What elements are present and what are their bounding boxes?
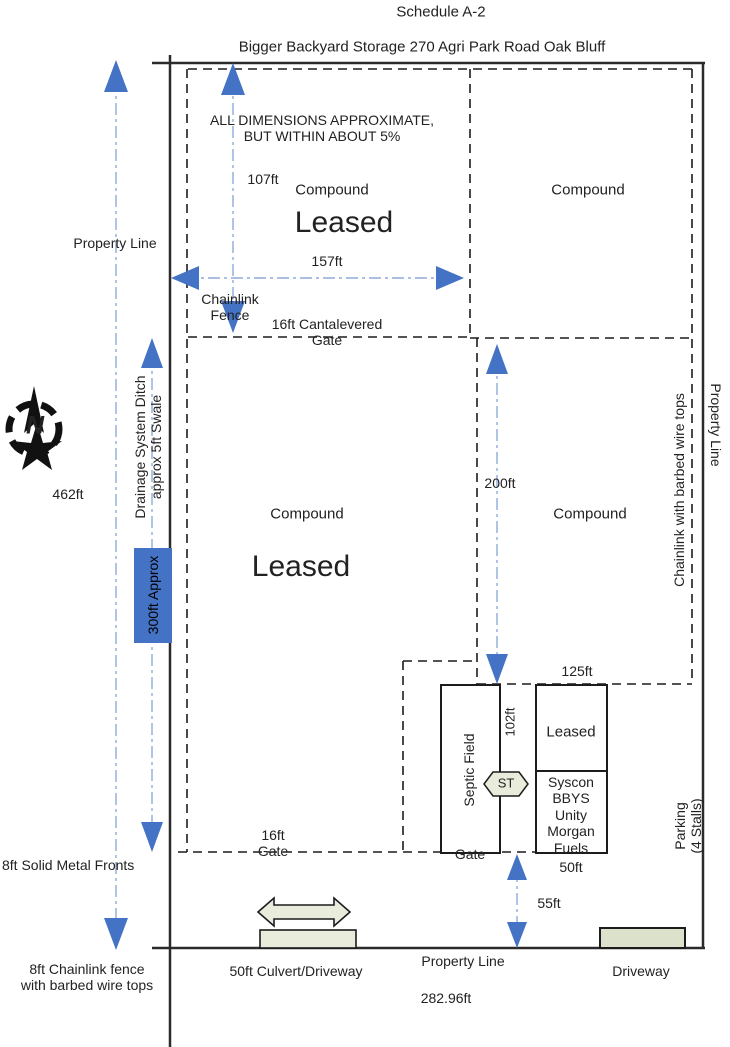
tenant-list: Syscon BBYS Unity Morgan Fuels (547, 774, 594, 856)
property-boundary-lines (152, 55, 705, 1047)
dim-50ft-label: 50ft (559, 859, 582, 875)
arrowhead-157-left (171, 266, 199, 290)
tenant-name: Syscon (547, 774, 594, 790)
plan-drawing (0, 0, 730, 1047)
tr-compound-label: Compound (551, 181, 624, 198)
parking-label: Parking (4 Stalls) (672, 798, 704, 853)
chainlink-barbed-label: 8ft Chainlink fence with barbed wire top… (21, 961, 153, 993)
dimension-disclaimer: ALL DIMENSIONS APPROXIMATE, BUT WITHIN A… (210, 112, 434, 144)
dim-462ft-label: 462ft (52, 486, 83, 502)
double-arrow-shape (258, 898, 350, 926)
drainage-line2: approx 5ft Swale (148, 375, 164, 518)
dim-125ft-label: 125ft (561, 663, 592, 679)
arrowhead-55-up (507, 854, 527, 880)
driveway-rect (600, 928, 685, 948)
dim-102ft-label: 102ft (504, 708, 519, 737)
chainlink-fence-label: Chainlink Fence (201, 291, 259, 323)
driveway-shapes (258, 898, 685, 948)
driveway-label: Driveway (612, 963, 670, 979)
plan-subtitle: Bigger Backyard Storage 270 Agri Park Ro… (239, 38, 606, 55)
septic-field-label: Septic Field (461, 733, 477, 806)
culvert-rect (260, 930, 356, 948)
chainlink-fence-line1: Chainlink (201, 291, 259, 307)
bottom-property-line-label: Property Line (421, 953, 504, 969)
parking-line2: (4 Stalls) (688, 798, 704, 853)
dim-200ft-label: 200ft (484, 475, 515, 491)
page-title: Schedule A-2 (396, 3, 485, 20)
arrowhead-drainage-down (141, 822, 163, 852)
tl-compound-label: Compound (295, 181, 368, 198)
chainlink-barbed-line2: with barbed wire tops (21, 977, 153, 993)
16ft-gate-line2: Gate (258, 843, 288, 859)
dim-107ft-label: 107ft (247, 171, 278, 187)
arrowhead-157-right (436, 266, 464, 290)
left-property-line-label: Property Line (73, 235, 156, 251)
site-plan: Schedule A-2 Bigger Backyard Storage 270… (0, 0, 730, 1047)
septic-gate-label: Gate (455, 846, 485, 862)
tenant-leased-label: Leased (546, 723, 595, 740)
drainage-line1: Drainage System Ditch (132, 375, 148, 518)
cantilevered-gate-label: 16ft Cantalevered Gate (272, 316, 383, 348)
center-compound-label: Compound (270, 505, 343, 522)
16ft-gate-line1: 16ft (258, 827, 288, 843)
arrowhead-107-up (221, 63, 245, 95)
arrowhead-200-up (486, 344, 508, 374)
tenant-name: Morgan (547, 823, 594, 839)
arrowhead-462-down (104, 918, 128, 950)
compass-north-letter: N (26, 412, 44, 441)
septic-tank-label: ST (498, 777, 515, 792)
arrowhead-55-down (507, 922, 527, 948)
tenant-name: Unity (547, 807, 594, 823)
tenant-name: BBYS (547, 790, 594, 806)
solid-metal-fronts-label: 8ft Solid Metal Fronts (2, 857, 134, 873)
drainage-ditch-label: Drainage System Ditch approx 5ft Swale (132, 375, 164, 518)
dim-300ft-label: 300ft Approx (145, 556, 161, 635)
disclaimer-line1: ALL DIMENSIONS APPROXIMATE, (210, 112, 434, 128)
arrowhead-200-down (486, 654, 508, 684)
chainlink-barbed-line1: 8ft Chainlink fence (21, 961, 153, 977)
tenant-name: Fuels (547, 840, 594, 856)
tl-leased-label: Leased (295, 206, 393, 241)
center-leased-label: Leased (252, 550, 350, 585)
chainlink-fence-line2: Fence (201, 307, 259, 323)
arrowhead-462-up (104, 60, 128, 92)
cantilevered-gate-line2: Gate (272, 332, 383, 348)
culvert-driveway-label: 50ft Culvert/Driveway (229, 963, 362, 979)
frontage-dimension-label: 282.96ft (421, 990, 472, 1006)
cantilevered-gate-line1: 16ft Cantalevered (272, 316, 383, 332)
arrowhead-drainage-up (141, 338, 163, 368)
parking-line1: Parking (672, 798, 688, 853)
right-property-line-label: Property Line (708, 383, 724, 466)
16ft-gate-label: 16ft Gate (258, 827, 288, 859)
dim-157ft-label: 157ft (311, 253, 342, 269)
right-chainlink-label: Chainlink with barbed wire tops (671, 393, 687, 587)
disclaimer-line2: BUT WITHIN ABOUT 5% (210, 128, 434, 144)
dim-55ft-label: 55ft (537, 895, 560, 911)
right-compound-label: Compound (553, 505, 626, 522)
